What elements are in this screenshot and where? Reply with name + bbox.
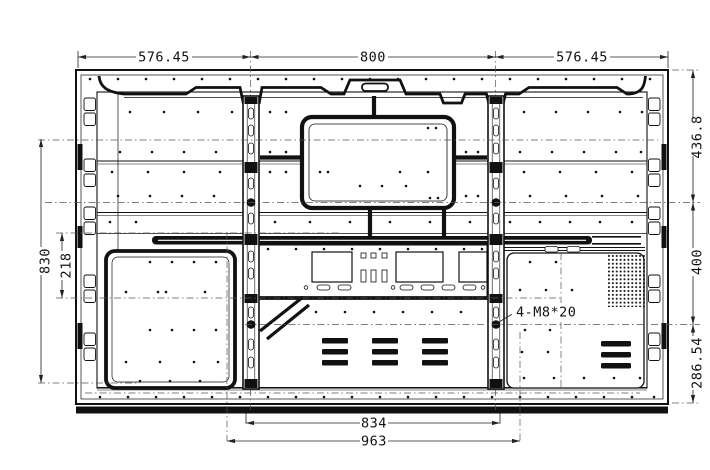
dim-top-right: 576.45 — [556, 50, 608, 66]
bottom-left-panel — [106, 251, 235, 388]
connector-cutout — [396, 252, 443, 282]
bottom-edge-bar — [76, 407, 668, 414]
dim-left-outer: 830 — [38, 248, 54, 274]
dim-left-inner: 218 — [59, 253, 75, 279]
technical-drawing-rear-view: 576.45 800 576.45 436.8 400 286.54 830 2… — [0, 0, 710, 470]
dim-top-left: 576.45 — [138, 50, 190, 66]
speaker-perforation-grid — [607, 254, 646, 307]
drawing-canvas: 576.45 800 576.45 436.8 400 286.54 830 2… — [0, 0, 710, 470]
edge-slot — [545, 247, 558, 253]
edge-slot — [567, 247, 580, 253]
dim-bottom-inner: 834 — [361, 416, 387, 432]
dim-right-lower: 286.54 — [690, 337, 706, 389]
dim-top-center: 800 — [360, 50, 386, 66]
mount-hole-annotation: 4-M8*20 — [516, 305, 576, 321]
connector-cutout — [459, 252, 487, 282]
connector-tray — [258, 245, 488, 298]
dim-right-middle: 400 — [690, 249, 706, 275]
mount-bar — [152, 236, 641, 245]
vent-slots-right — [601, 341, 631, 369]
dim-bottom-outer: 963 — [361, 434, 387, 450]
vent-slots-center — [322, 338, 448, 366]
dim-right-upper: 436.8 — [690, 115, 706, 158]
connector-cutout — [312, 252, 352, 282]
handle-slot — [362, 84, 388, 92]
